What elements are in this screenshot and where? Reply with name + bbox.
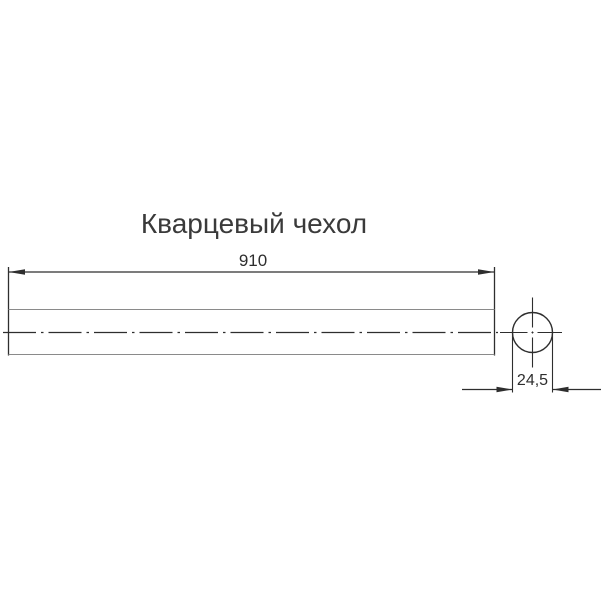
diameter-dimension-arrow-left-icon — [497, 387, 513, 392]
technical-drawing-canvas: Кварцевый чехол 910 24,5 — [0, 0, 603, 603]
length-dimension-arrow-right-icon — [478, 269, 495, 274]
length-dimension-label: 910 — [239, 251, 267, 270]
quartz-sleeve-drawing: Кварцевый чехол 910 24,5 — [0, 0, 603, 603]
drawing-title: Кварцевый чехол — [141, 208, 367, 239]
diameter-dimension-label: 24,5 — [517, 372, 548, 389]
length-dimension-arrow-left-icon — [9, 269, 26, 274]
diameter-dimension-arrow-right-icon — [553, 387, 569, 392]
